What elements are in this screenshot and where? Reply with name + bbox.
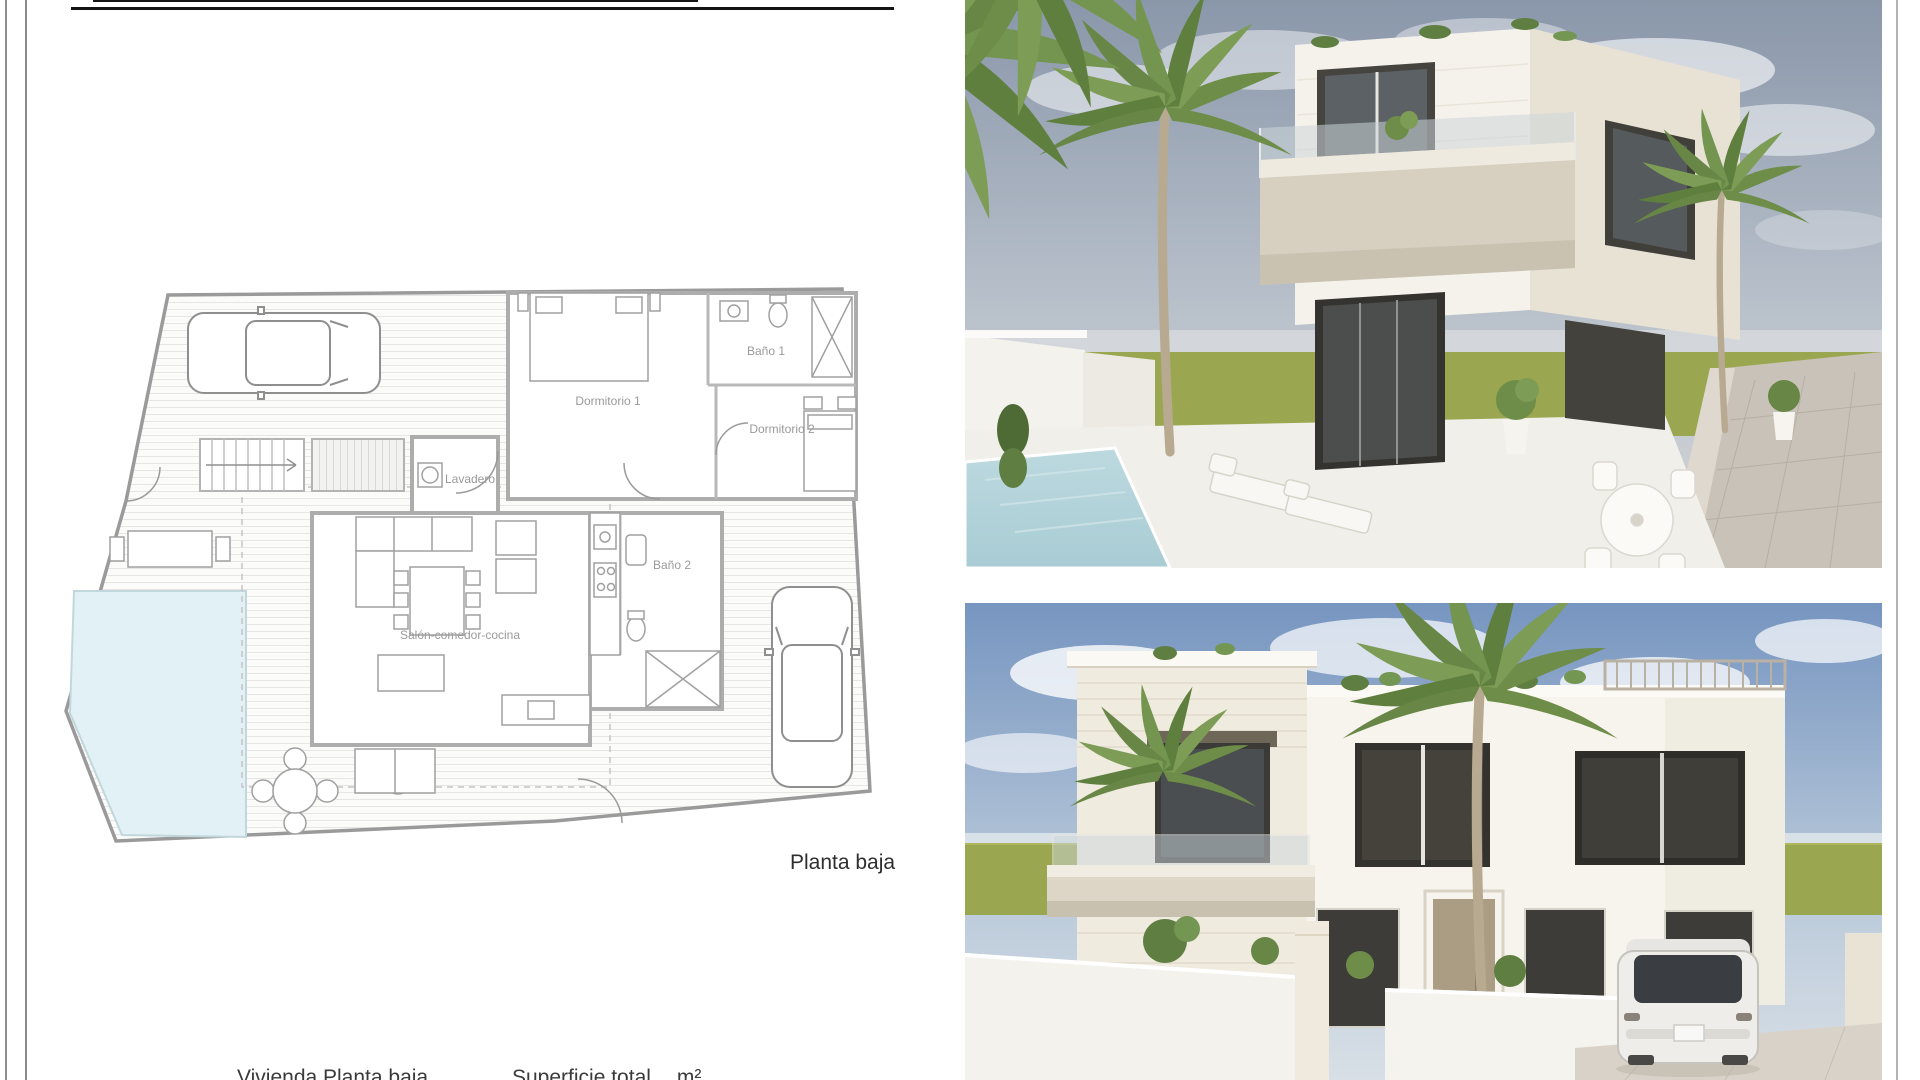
top-rule-secondary: [93, 0, 698, 2]
page-border-right: [1896, 0, 1898, 1080]
stairs: [200, 439, 304, 491]
right-upper-window: [1575, 751, 1745, 865]
render-photo-corner-view: [965, 0, 1882, 568]
garden-table: [110, 531, 230, 567]
footer-unit: m²: [677, 1066, 702, 1080]
tower-balcony: [1047, 835, 1315, 917]
plan-caption: Planta baja: [790, 851, 895, 874]
floor-plan-drawing: Dormitorio 1 Baño 1 Dormitorio 2 Lavader…: [60, 225, 910, 875]
floor-plan: Dormitorio 1 Baño 1 Dormitorio 2 Lavader…: [60, 225, 910, 875]
room-label-dormitorio1: Dormitorio 1: [575, 394, 641, 408]
car-top-view-driveway: [765, 587, 859, 787]
page-border-left-outer: [5, 0, 7, 1080]
pool: [70, 591, 246, 837]
room-label-bano1: Baño 1: [747, 344, 785, 358]
laundry-fixtures: [418, 463, 442, 487]
ground-glass-doors: [1315, 292, 1445, 470]
outdoor-bench: [355, 749, 435, 793]
balcony: [1260, 112, 1575, 285]
bed-dormitorio1: [518, 293, 660, 381]
document-page: Dormitorio 1 Baño 1 Dormitorio 2 Lavader…: [0, 0, 1920, 1080]
room-label-bano2: Baño 2: [653, 558, 691, 572]
room-label-salon: Salón-comedor-cocina: [400, 628, 520, 642]
footer-right-label: Superficie totalm²: [512, 1066, 701, 1080]
room-label-dormitorio2: Dormitorio 2: [749, 422, 815, 436]
top-rule-primary: [71, 7, 894, 10]
footer-left-label: Vivienda Planta baja: [237, 1066, 428, 1080]
car-rear-view: [1616, 939, 1760, 1077]
right-ground-window: [1565, 320, 1665, 430]
car-top-view-garage: [188, 307, 380, 399]
bed-dormitorio2: [804, 397, 856, 491]
footer-right-text: Superficie total: [512, 1066, 651, 1080]
page-border-left-inner: [25, 0, 27, 1080]
render-photo-front-view: [965, 603, 1882, 1080]
striped-deck: [312, 439, 404, 491]
center-upper-window: [1355, 743, 1490, 867]
room-label-lavadero: Lavadero: [445, 472, 495, 486]
